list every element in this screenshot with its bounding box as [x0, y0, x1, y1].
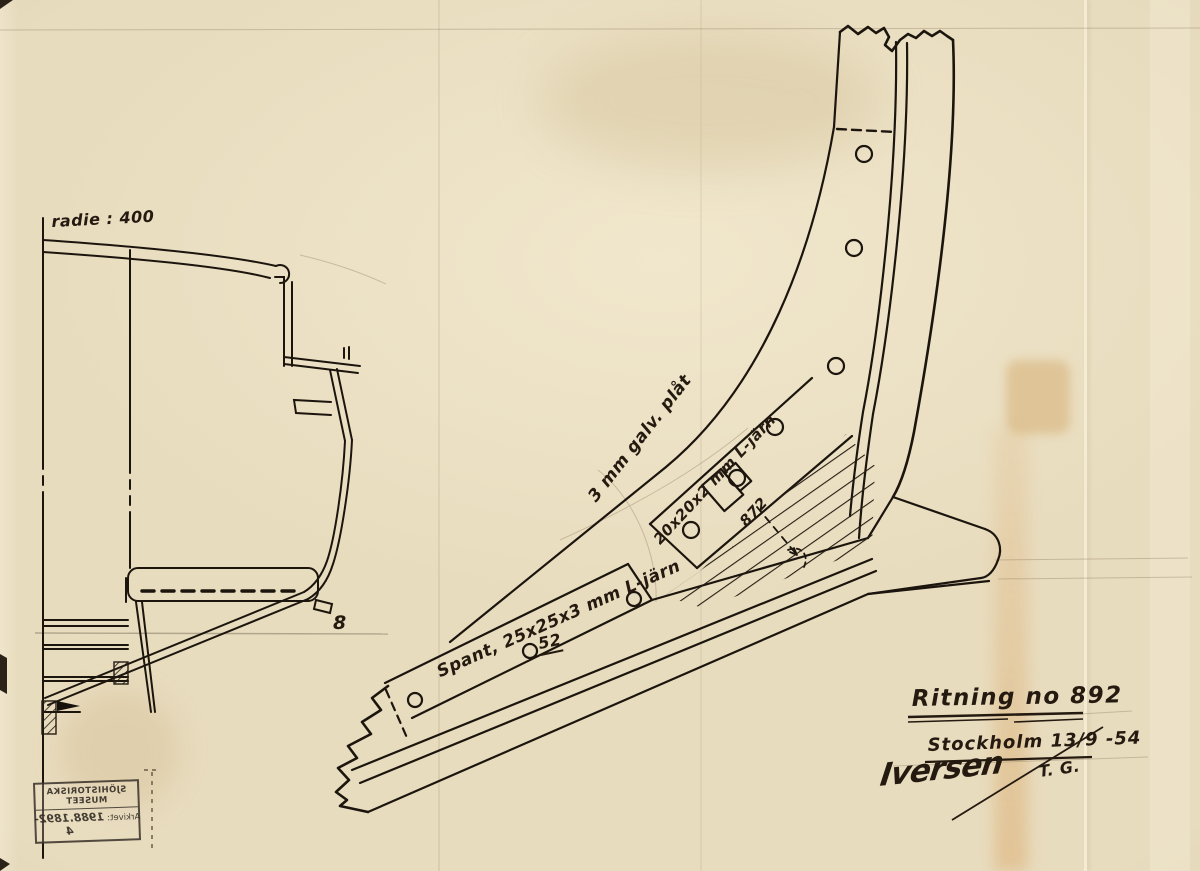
cross-section-view	[43, 218, 360, 858]
torn-edge-bottom	[336, 686, 388, 812]
museum-stamp: SJÖHISTORISKA MUSEET Arkivet: 1988.1892-…	[33, 779, 141, 844]
pencil-guidelines	[0, 28, 1200, 766]
drawing-number: Ritning no 892	[912, 682, 1123, 712]
detail-view	[336, 26, 1000, 812]
stamp-outline-dashes	[144, 770, 158, 852]
drawing-sheet: radie : 400 3 mm galv. plåt 20x20x2 mm L…	[0, 0, 1200, 871]
museum-stamp-archive-label: Arkivet:	[107, 812, 140, 823]
baseline-number-annotation: 8	[333, 612, 347, 634]
cross-section-hatched-parts	[42, 662, 128, 734]
fin-profile	[868, 497, 1000, 594]
museum-stamp-archive-number: 1988.1892-4	[34, 810, 105, 838]
edge-marks	[0, 0, 13, 871]
rivet-number-annotation: 52	[536, 630, 563, 656]
hatched-region	[664, 434, 875, 608]
museum-stamp-name: SJÖHISTORISKA MUSEET	[35, 781, 138, 811]
